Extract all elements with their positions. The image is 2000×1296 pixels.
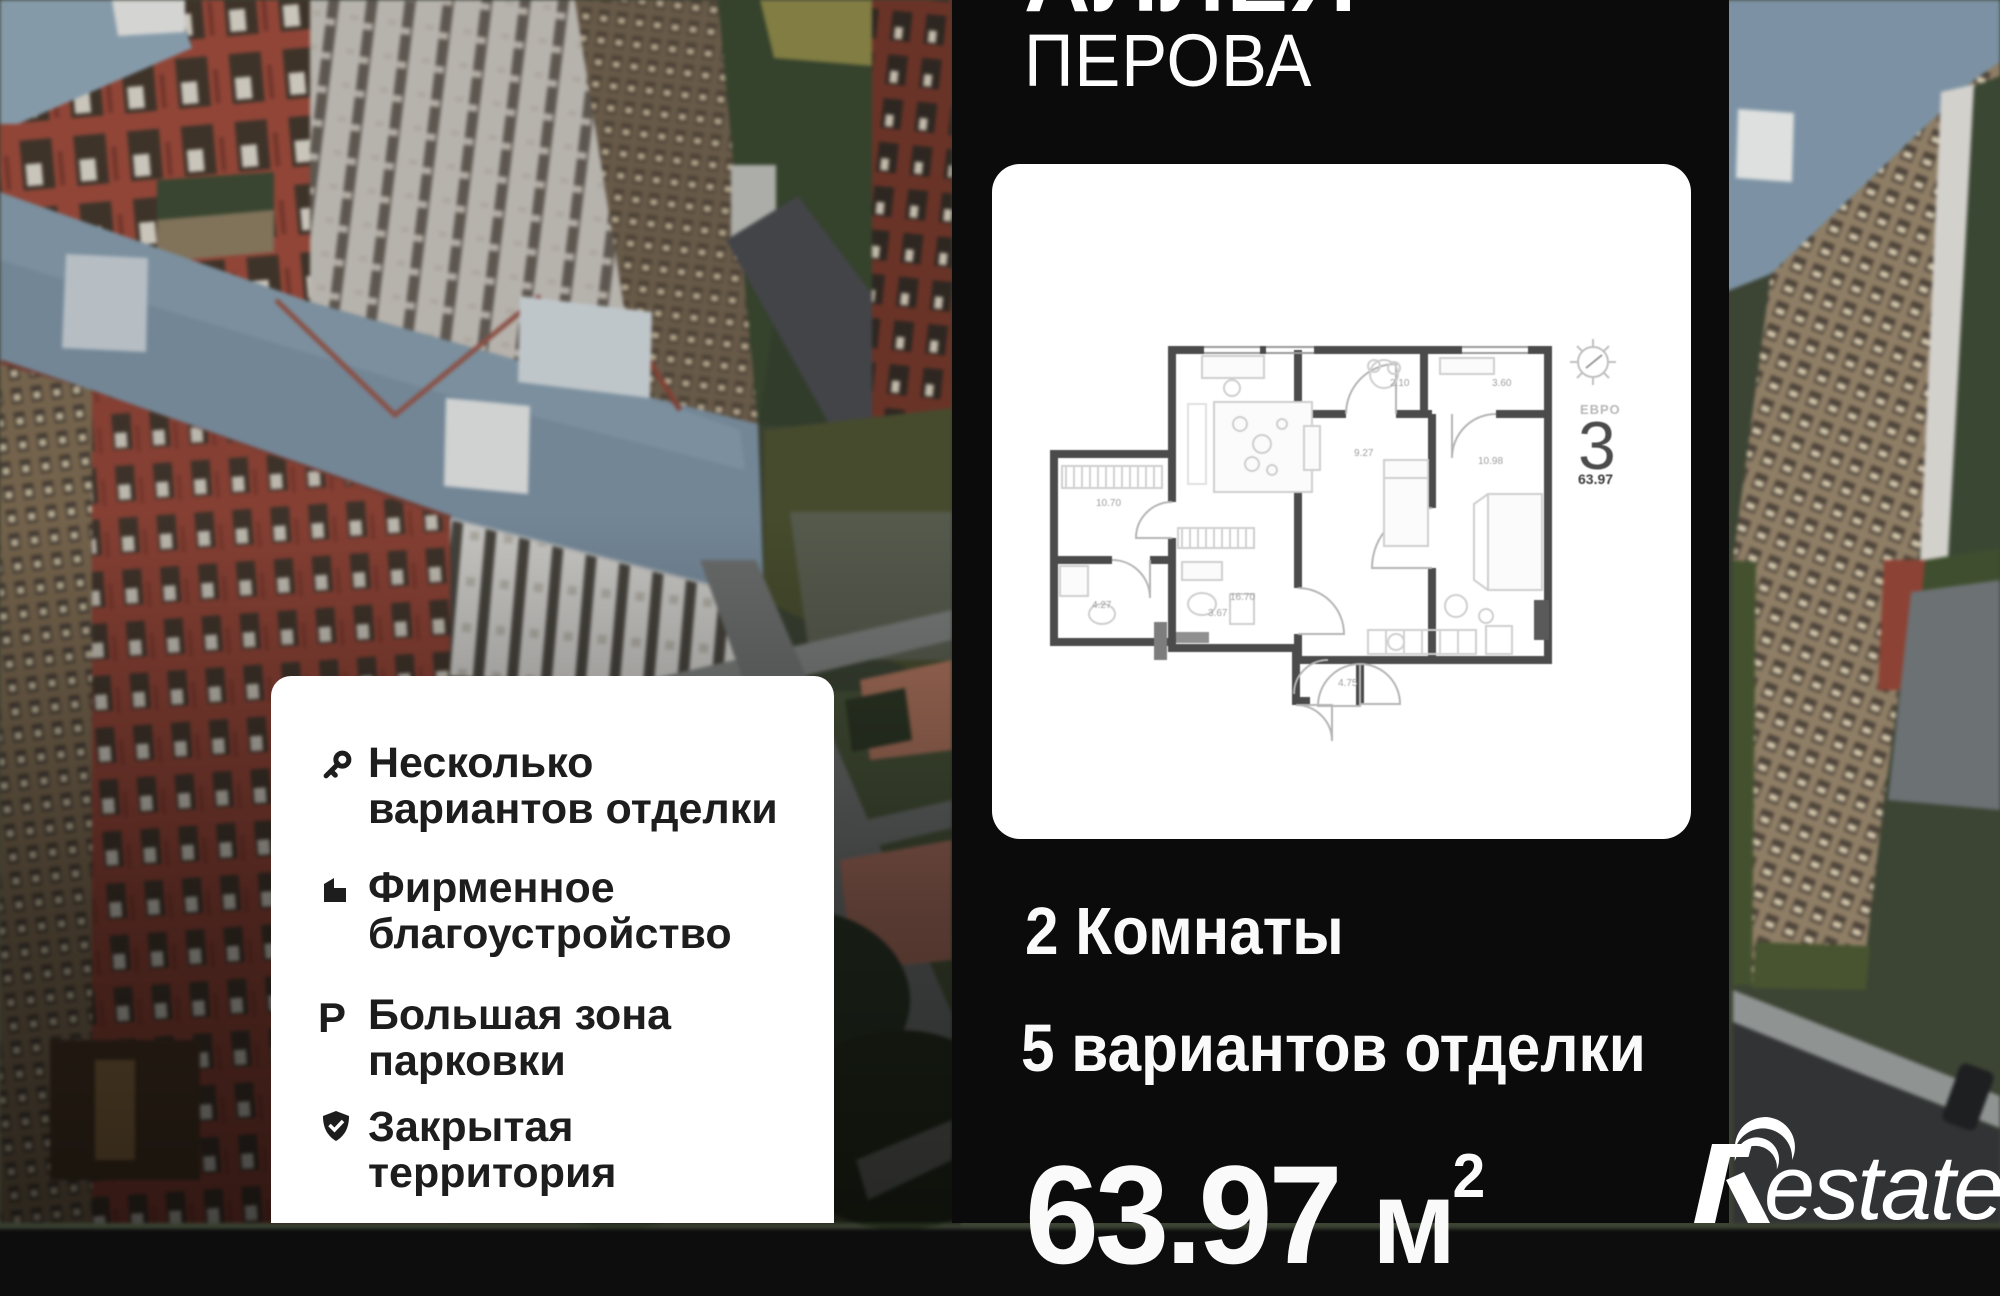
- svg-text:4.75: 4.75: [1338, 678, 1358, 689]
- svg-text:10.98: 10.98: [1478, 456, 1503, 467]
- svg-text:estate: estate: [1764, 1137, 2000, 1223]
- svg-text:16.70: 16.70: [1230, 592, 1255, 603]
- svg-text:63.97: 63.97: [1578, 471, 1613, 487]
- svg-text:9.27: 9.27: [1354, 448, 1374, 459]
- svg-text:10.70: 10.70: [1096, 498, 1121, 509]
- svg-text:2.10: 2.10: [1390, 378, 1410, 389]
- svg-text:4.27: 4.27: [1092, 600, 1112, 611]
- svg-text:3.60: 3.60: [1492, 378, 1512, 389]
- svg-text:3.67: 3.67: [1208, 608, 1228, 619]
